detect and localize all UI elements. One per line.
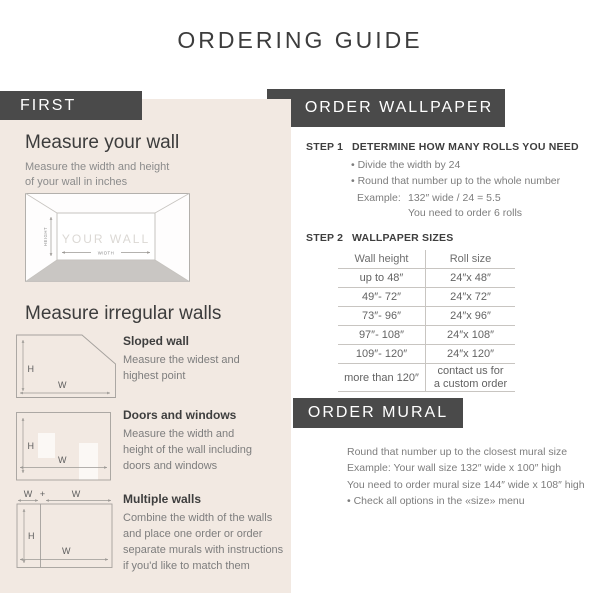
room-perspective-diagram: YOUR WALL HEIGHT WIDTH xyxy=(25,193,190,282)
order-mural-header-label: ORDER MURAL xyxy=(308,404,448,422)
height-label: HEIGHT xyxy=(43,227,48,246)
table-row: 97″- 108″ 24″x 108″ xyxy=(338,326,515,345)
wall-height-cell: more than 120″ xyxy=(338,364,426,392)
sloped-wall-description: Measure the widest and highest point xyxy=(123,352,240,384)
sloped-wall-title: Sloped wall xyxy=(123,334,189,348)
multi-w2-label: W xyxy=(72,489,81,499)
window-shape xyxy=(38,433,55,458)
roll-size-cell: 24″x 120″ xyxy=(426,345,516,364)
step1-bullet-1: • Divide the width by 24 xyxy=(351,159,460,171)
wallpaper-sizes-table: Wall height Roll size up to 48″ 24″x 48″… xyxy=(338,250,515,392)
ordering-guide-page: ORDERING GUIDE ORDER WALLPAPER FIRST Mea… xyxy=(0,0,600,600)
mural-line: • Check all options in the «size» menu xyxy=(347,493,585,509)
wall-height-cell: 73″- 96″ xyxy=(338,307,426,326)
doors-w-label: W xyxy=(58,455,67,465)
multiple-walls-title: Multiple walls xyxy=(123,492,201,506)
table-row: 109″- 120″ 24″x 120″ xyxy=(338,345,515,364)
step1-title: DETERMINE HOW MANY ROLLS YOU NEED xyxy=(352,141,579,153)
col-wall-height-header: Wall height xyxy=(338,250,426,269)
your-wall-watermark: YOUR WALL xyxy=(62,232,150,246)
irregular-walls-title: Measure irregular walls xyxy=(25,303,221,325)
multi-w1-label: W xyxy=(24,489,33,499)
mural-line: Example: Your wall size 132″ wide x 100″… xyxy=(347,460,585,476)
multi-plus-label: + xyxy=(40,489,45,499)
table-row: 73″- 96″ 24″x 96″ xyxy=(338,307,515,326)
order-mural-header: ORDER MURAL xyxy=(293,398,463,428)
sloped-h-label: H xyxy=(28,364,35,374)
step2-title: WALLPAPER SIZES xyxy=(352,232,453,244)
first-header-label: FIRST xyxy=(20,97,76,115)
table-row: more than 120″ contact us for a custom o… xyxy=(338,364,515,392)
doors-h-label: H xyxy=(28,441,35,451)
multiple-walls-diagram: W + W H W xyxy=(16,489,116,573)
mural-line: Round that number up to the closest mura… xyxy=(347,444,585,460)
measure-wall-title: Measure your wall xyxy=(25,132,179,154)
door-shape xyxy=(79,443,98,480)
sloped-wall-diagram: H W xyxy=(16,334,116,399)
table-row: 49″- 72″ 24″x 72″ xyxy=(338,288,515,307)
wall-height-cell: 97″- 108″ xyxy=(338,326,426,345)
step1-bullet-2: • Round that number up to the whole numb… xyxy=(351,175,560,187)
doors-windows-description: Measure the width and height of the wall… xyxy=(123,426,252,474)
step2-label: STEP 2 xyxy=(306,232,343,244)
roll-size-cell: 24″x 108″ xyxy=(426,326,516,345)
wall-height-cell: 49″- 72″ xyxy=(338,288,426,307)
example-result: You need to order 6 rolls xyxy=(408,207,522,219)
width-label: WIDTH xyxy=(98,251,115,256)
example-value: 132″ wide / 24 = 5.5 xyxy=(408,192,501,204)
roll-size-cell: 24″x 48″ xyxy=(426,269,516,288)
wall-height-cell: up to 48″ xyxy=(338,269,426,288)
order-mural-text: Round that number up to the closest mura… xyxy=(347,444,585,509)
roll-size-cell: contact us for a custom order xyxy=(426,364,516,392)
example-label: Example: xyxy=(357,192,401,204)
mural-line: You need to order mural size 144″ wide x… xyxy=(347,477,585,493)
multi-h-label: H xyxy=(28,531,35,541)
sloped-w-label: W xyxy=(58,380,67,390)
order-wallpaper-header-label: ORDER WALLPAPER xyxy=(305,99,493,117)
first-header: FIRST xyxy=(0,91,142,120)
roll-size-cell: 24″x 96″ xyxy=(426,307,516,326)
order-wallpaper-header: ORDER WALLPAPER xyxy=(267,89,505,127)
measure-wall-subtitle: Measure the width and height of your wal… xyxy=(25,160,169,190)
multiple-walls-description: Combine the width of the walls and place… xyxy=(123,510,283,574)
table-row: up to 48″ 24″x 48″ xyxy=(338,269,515,288)
roll-size-cell: 24″x 72″ xyxy=(426,288,516,307)
table-header-row: Wall height Roll size xyxy=(338,250,515,269)
multi-w-label: W xyxy=(62,546,71,556)
page-title: ORDERING GUIDE xyxy=(0,27,600,54)
wall-height-cell: 109″- 120″ xyxy=(338,345,426,364)
step1-label: STEP 1 xyxy=(306,141,343,153)
doors-windows-title: Doors and windows xyxy=(123,408,236,422)
col-roll-size-header: Roll size xyxy=(426,250,516,269)
doors-windows-diagram: H W xyxy=(16,412,111,481)
